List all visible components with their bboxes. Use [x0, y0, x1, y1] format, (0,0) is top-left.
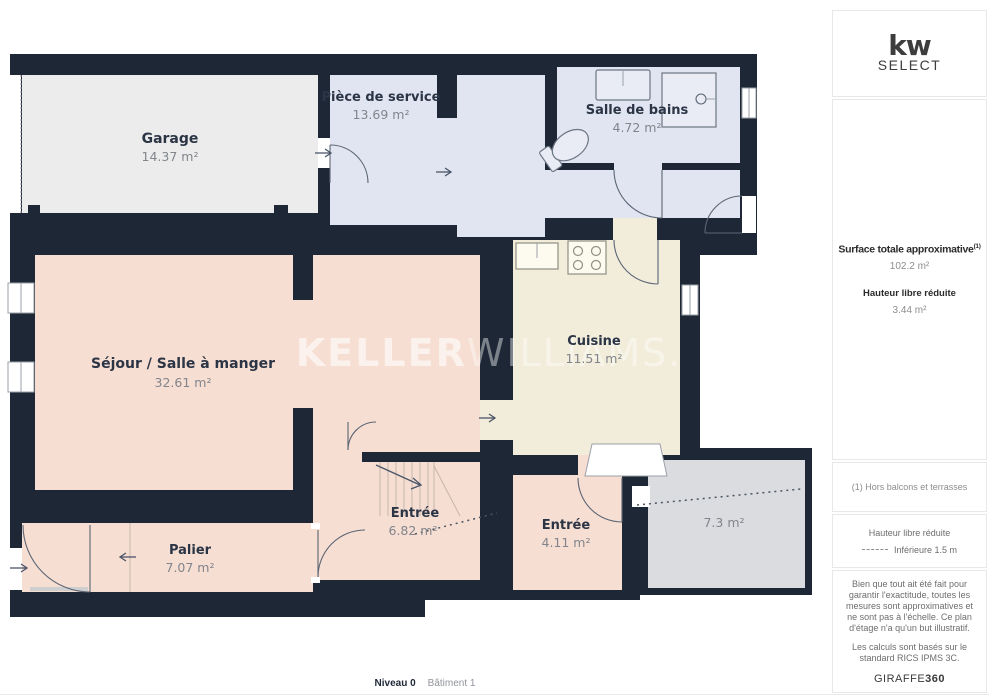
corridor-a [457, 75, 545, 237]
height-value: 3.44 m² [893, 305, 927, 316]
kitchen-door-opening [613, 218, 657, 240]
height-title: Hauteur libre réduite [863, 288, 956, 299]
legend-item-label: Inférieure 1.5 m [894, 545, 957, 555]
window-icon [8, 283, 34, 313]
label-garage-area: 14.37 m² [142, 149, 199, 164]
label-palier-area: 7.07 m² [166, 560, 215, 575]
label-cuisine: Cuisine [567, 334, 621, 349]
entry-opening [8, 548, 22, 590]
surface-title: Surface totale approximative(1) [838, 243, 980, 256]
label-palier: Palier [169, 543, 212, 558]
door-jamb [311, 577, 320, 583]
agency-logo-box: kw SELECT [832, 10, 987, 97]
disclaimer-box: Bien que tout ait été fait pour garantir… [832, 570, 987, 693]
bath-sink-icon [596, 70, 650, 100]
dining-kitchen-opening [480, 400, 513, 440]
garage-notch-left [28, 205, 40, 213]
wall-service-stub [437, 54, 457, 118]
garage-notch-right [274, 205, 288, 213]
floorplan-page: KELLERWILLIAMS. Garage 14.37 m² Pièce de… [0, 0, 989, 700]
entree-pass-left [313, 452, 362, 462]
label-piece-de-service: Pièce de service [322, 90, 441, 105]
room-palier [130, 523, 313, 592]
window-icon [742, 88, 756, 118]
label-piece-de-service-area: 13.69 m² [353, 107, 410, 122]
corridor-b [545, 170, 740, 218]
wall-bottom-mid [425, 580, 500, 600]
level-label: Niveau 0 [375, 678, 416, 689]
threshold [30, 587, 88, 591]
label-salle-de-bains-area: 4.72 m² [613, 120, 662, 135]
room-sejour [35, 255, 293, 490]
footnote-text: (1) Hors balcons et terrasses [852, 482, 968, 493]
label-entree-secondaire-area: 4.11 m² [542, 535, 591, 550]
label-entree-principale: Entrée [391, 506, 440, 521]
surface-info-box: Surface totale approximative(1) 102.2 m²… [832, 99, 987, 460]
shower-icon [662, 73, 716, 127]
reduit-opening [632, 486, 650, 507]
garage-door-opening [10, 75, 21, 213]
surface-value: 102.2 m² [890, 261, 929, 272]
dashed-line-sample [862, 549, 888, 550]
corridor-right-door-opening [742, 196, 756, 233]
window-icon [682, 285, 698, 315]
window-icon [8, 362, 34, 392]
giraffe360-logo: GIRAFFE360 [874, 673, 945, 685]
kw-logo-select: SELECT [878, 58, 941, 73]
footnote-ref: (1) [974, 243, 981, 250]
kitchen-sink-icon [516, 243, 558, 269]
page-bottom-divider [0, 694, 989, 695]
plan-footer: Niveau 0 Bâtiment 1 [330, 678, 520, 689]
label-entree-principale-area: 6.82 m² [389, 523, 438, 538]
label-cuisine-area: 11.51 m² [566, 351, 623, 366]
stove-icon [568, 241, 606, 274]
watermark: KELLERWILLIAMS. [296, 331, 682, 375]
kw-logo: kw [888, 34, 931, 58]
entry-awning [585, 444, 667, 476]
label-entree-secondaire: Entrée [542, 518, 591, 533]
room-porche [22, 523, 130, 592]
building-label: Bâtiment 1 [428, 678, 476, 689]
label-sejour-area: 32.61 m² [155, 375, 212, 390]
label-salle-de-bains: Salle de bains [586, 103, 689, 118]
disclaimer-text-1: Bien que tout ait été fait pour garantir… [845, 579, 974, 634]
label-sejour: Séjour / Salle à manger [91, 356, 275, 372]
disclaimer-text-2: Les calculs sont basés sur le standard R… [845, 642, 974, 664]
bath-door-opening [614, 163, 662, 170]
legend-title: Hauteur libre réduite [869, 528, 951, 538]
door-jamb [311, 523, 320, 529]
label-garage: Garage [142, 131, 199, 147]
footnote-box: (1) Hors balcons et terrasses [832, 462, 987, 512]
legend-box: Hauteur libre réduite Inférieure 1.5 m [832, 514, 987, 568]
label-reduit-area: 7.3 m² [703, 515, 744, 530]
wall-stairs [362, 452, 480, 462]
